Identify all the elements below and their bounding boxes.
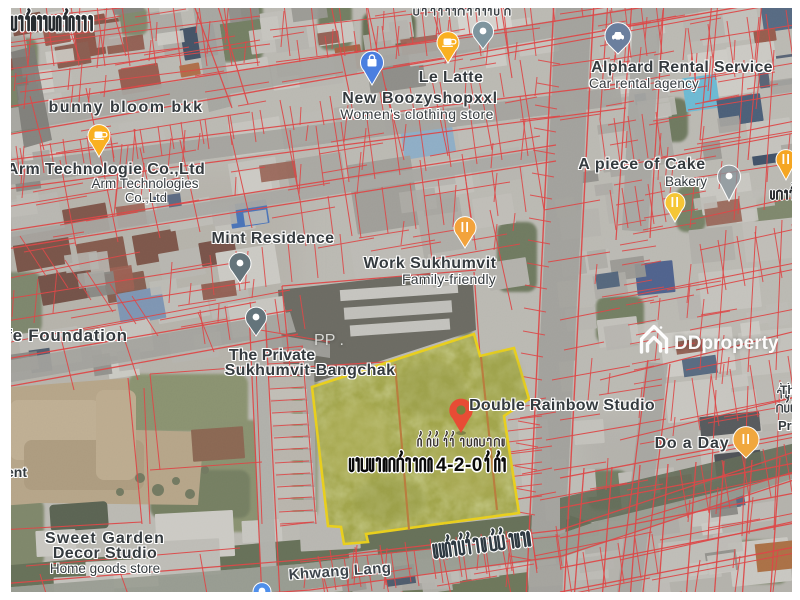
- svg-text:4-2-0: 4-2-0: [436, 455, 483, 476]
- svg-text:DDproperty: DDproperty: [674, 333, 779, 354]
